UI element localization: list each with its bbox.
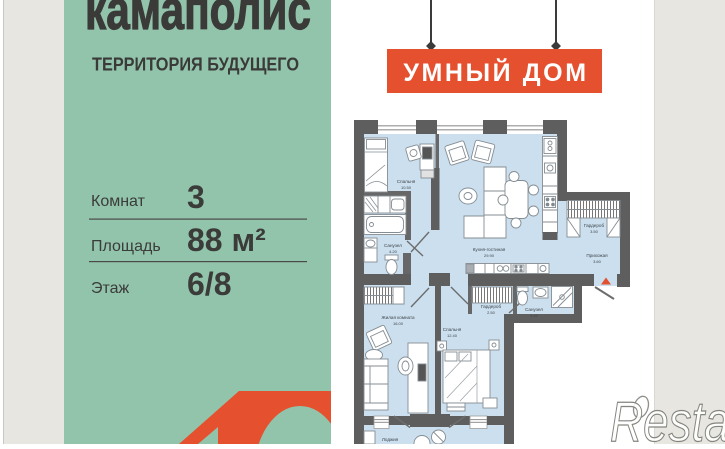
svg-text:Санузел: Санузел (525, 307, 543, 312)
svg-text:3.50: 3.50 (590, 229, 599, 234)
svg-text:Спальня: Спальня (397, 179, 416, 184)
svg-text:16.00: 16.00 (393, 321, 404, 326)
svg-text:Площадь: Площадь (91, 238, 161, 255)
svg-text:Лоджия: Лоджия (382, 437, 399, 442)
svg-text:4.20: 4.20 (389, 249, 398, 254)
svg-text:УМНЫЙ ДОМ: УМНЫЙ ДОМ (403, 57, 588, 87)
svg-text:88 м²: 88 м² (187, 222, 266, 258)
svg-text:Гардероб: Гардероб (481, 304, 502, 309)
svg-text:ТЕРРИТОРИЯ БУДУЩЕГО: ТЕРРИТОРИЯ БУДУЩЕГО (92, 55, 299, 75)
svg-text:Жилая комната: Жилая комната (381, 315, 415, 320)
svg-text:Спальня: Спальня (443, 327, 462, 332)
svg-text:10.50: 10.50 (401, 185, 412, 190)
svg-text:Гардероб: Гардероб (584, 223, 605, 228)
svg-text:Санузел: Санузел (384, 243, 402, 248)
svg-text:2.50: 2.50 (487, 310, 496, 315)
svg-text:29.90: 29.90 (484, 253, 495, 258)
svg-text:Этаж: Этаж (91, 280, 130, 297)
svg-text:3.60: 3.60 (593, 259, 602, 264)
svg-text:камаполис: камаполис (85, 0, 311, 41)
svg-text:12.40: 12.40 (447, 333, 458, 338)
svg-text:3: 3 (187, 179, 205, 215)
svg-text:Комнат: Комнат (91, 193, 146, 210)
svg-text:Прихожая: Прихожая (586, 253, 608, 258)
svg-text:Restate: Restate (610, 390, 725, 444)
svg-text:3.40: 3.40 (530, 313, 539, 318)
svg-text:Кухня-гостиная: Кухня-гостиная (473, 247, 506, 252)
svg-text:6/8: 6/8 (187, 266, 231, 302)
